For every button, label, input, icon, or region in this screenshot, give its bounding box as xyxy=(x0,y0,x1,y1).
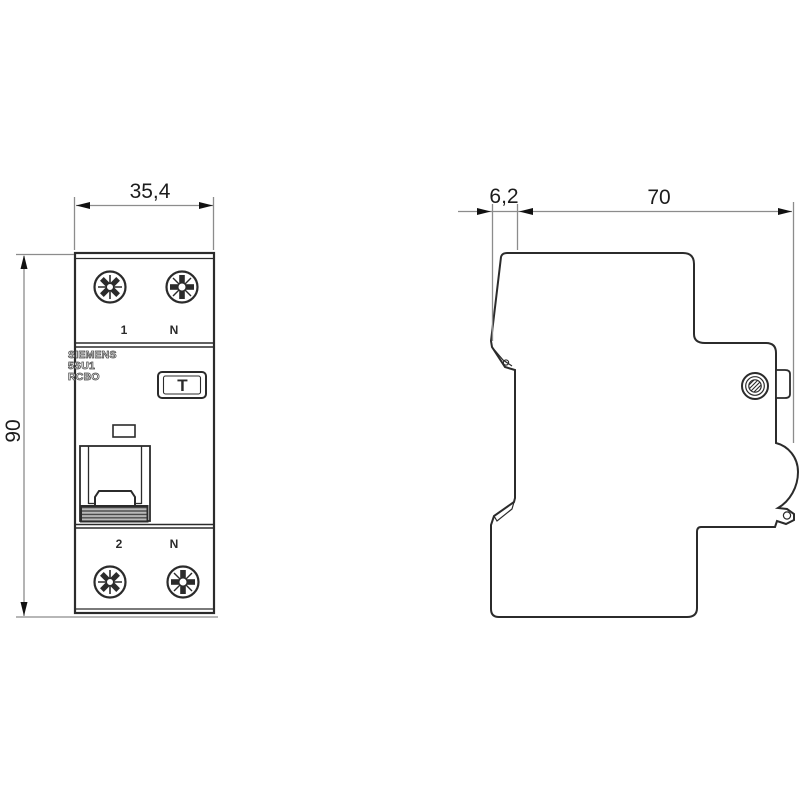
front-view: 1 N SIEMENS 5SU1 RCBO T 2 xyxy=(68,253,214,613)
terminal-label-n-top: N xyxy=(170,323,179,337)
drawing-canvas: 1 N SIEMENS 5SU1 RCBO T 2 xyxy=(0,0,800,800)
product-dimension-drawing: 1 N SIEMENS 5SU1 RCBO T 2 xyxy=(0,0,800,800)
dim-body-depth-label: 70 xyxy=(647,186,670,209)
indicator-window xyxy=(113,425,135,437)
terminal-label-1: 1 xyxy=(121,323,128,337)
test-button-label: T xyxy=(177,376,188,395)
side-body-outline xyxy=(491,253,798,617)
dim-width-label: 35,4 xyxy=(130,180,171,203)
front-body-outline xyxy=(75,253,214,613)
terminal-screw-icon xyxy=(95,567,126,598)
brand-line-rcbo: RCBO xyxy=(68,371,100,383)
terminal-label-2: 2 xyxy=(116,537,123,551)
dim-height-label: 90 xyxy=(2,419,25,442)
toggle-switch xyxy=(80,446,150,522)
rear-tab xyxy=(776,370,790,398)
dim-front-depth-label: 6,2 xyxy=(489,185,518,208)
test-button: T xyxy=(158,372,206,398)
terminal-label-n-bottom: N xyxy=(170,537,179,551)
toggle-handle-base xyxy=(81,506,148,522)
fixing-screw-icon xyxy=(742,373,768,399)
toggle-handle xyxy=(95,491,135,506)
terminal-screw-icon xyxy=(95,272,126,303)
terminal-screw-icon xyxy=(168,567,199,598)
terminal-screw-icon xyxy=(167,272,198,303)
side-view xyxy=(491,253,798,617)
